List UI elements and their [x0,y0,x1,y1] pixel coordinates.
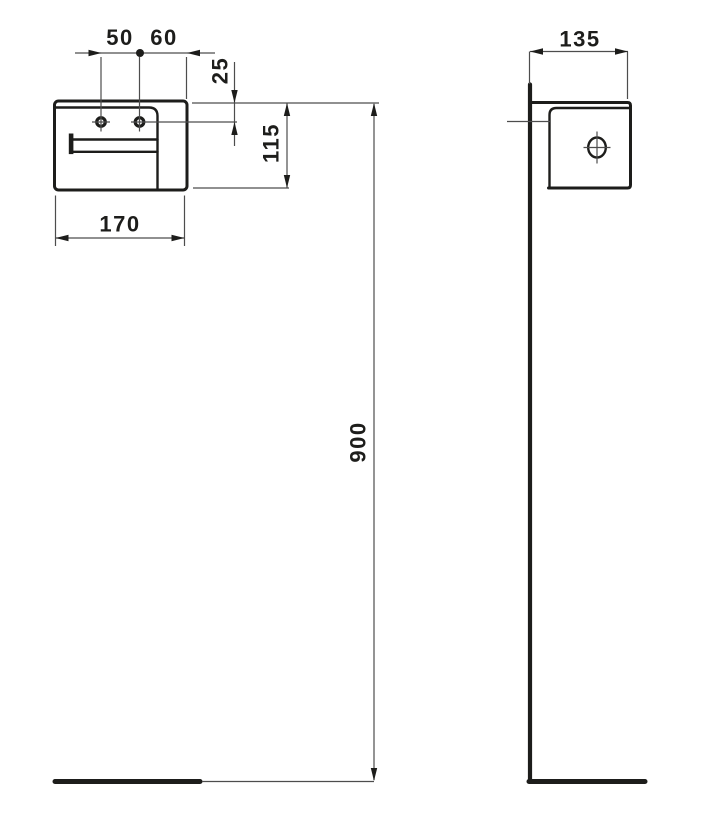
front-view [55,101,188,190]
arrow-up-icon [371,103,377,116]
dim-mounting-height: 900 [192,103,379,782]
dim-label-mounting-height: 900 [346,421,371,462]
dimension-drawing: 50 60 25 115 170 135 [0,0,724,824]
front-body-outline [55,101,188,190]
side-view [507,85,645,782]
arrow-left-icon [187,50,200,56]
arrow-left-icon [56,235,69,241]
dim-body-height: 115 [193,103,290,188]
dim-label-hole-to-edge: 60 [150,25,177,50]
drawing-canvas: 50 60 25 115 170 135 [0,0,724,824]
dim-body-width: 170 [56,196,185,247]
arrow-left-icon [530,48,543,54]
dim-divider-dot [136,49,144,57]
dim-body-depth: 135 [530,27,629,100]
roll-bar [73,140,158,152]
arrow-up-icon [284,103,290,116]
side-body-outline [532,103,631,189]
dim-label-hole-spacing: 50 [106,25,133,50]
arrow-down-icon [371,768,377,781]
roll-bar-crosshair-icon [584,132,611,164]
dim-label-body-depth: 135 [559,27,600,52]
arrow-down-icon [284,175,290,188]
arrow-down-icon [231,90,237,103]
arrow-right-icon [172,235,185,241]
dim-hole-spacing: 50 60 [75,25,215,132]
arrow-right-icon [89,50,102,56]
arrow-right-icon [615,48,628,54]
dim-135-extension-lines [530,52,628,100]
dim-label-body-width: 170 [99,212,140,237]
arrow-up-icon [231,122,237,135]
dim-label-top-to-hole: 25 [208,57,233,84]
dim-label-body-height: 115 [259,123,284,163]
